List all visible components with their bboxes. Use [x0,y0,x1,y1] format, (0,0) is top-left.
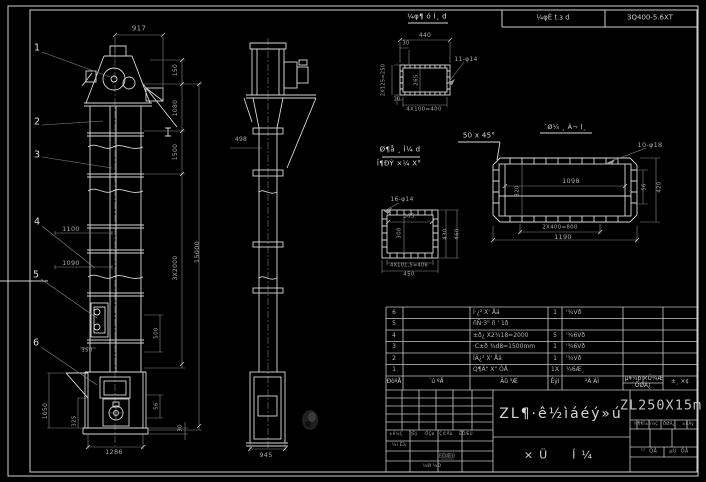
dim-label: 1080 [173,100,179,116]
dim-label: 365 [403,214,414,220]
dim-label: 945 [259,452,272,459]
dim-label: ±ê¼Ç [389,432,403,436]
dim-label: 420 [657,181,663,192]
dim-label: 2X400=800 [542,225,578,231]
bom-cell: 3 [392,344,396,350]
bom-cell: '¾Vð [566,310,581,316]
dim-label: 4X100=400 [406,107,442,113]
dim-label: 500 [154,327,160,338]
sheet-header-code: 3Q400-5.6XT [627,15,673,22]
bom-header-cell: ×Ü¼Æ [643,377,663,383]
dim-label: 11-φ14 [454,57,477,63]
bom-header-cell: µ¥¼þ [625,377,642,383]
dim-label: 440 [419,33,431,39]
text-label: 50 x 45° [463,133,495,140]
bom-cell: 1 [553,310,557,316]
item-balloon: 1 [34,43,40,53]
dim-label: 1286 [105,449,123,456]
bom-cell: ¼6Æ¸ [566,367,584,373]
dim-label: 1190 [554,234,572,241]
dim-label: 3X2000 [173,256,179,281]
dim-label: ÈÕÆÚ [459,432,473,436]
dim-label: 430 [443,228,449,239]
dim-label: ·ÖÇø [424,432,435,436]
dim-label: 56 [154,402,160,410]
dim-label: 4X101.5=406 [390,264,428,269]
bom-cell: 1X [551,367,559,373]
side-view [244,43,316,446]
bom-cell: '¾6Vð [566,344,585,350]
dim-label: 1090 [62,260,80,267]
dim-label: 450 [403,272,414,278]
dim-label: 2X125=250 [382,64,387,97]
front-view [66,46,177,434]
bom-cell: 6 [392,310,396,316]
bom-header-cell: ÐòºÅ [387,380,402,386]
bom-cell: 1 [553,344,557,350]
bom-cell: ·C±ð ¾d8=1500mm [473,344,535,350]
item-balloon: 4 [34,217,40,227]
item-balloon: 2 [34,117,40,127]
dim-label: 16-φ14 [390,197,413,203]
dim-label: 460 [455,228,461,239]
text-label: Î¶ÐÝ ×¼ X° [377,161,421,168]
item-balloon: 3 [34,150,40,160]
centerlines [115,38,268,448]
text-label: ¼φ¶ ó Ì¸ d [407,14,447,21]
item-balloon: 6 [33,338,39,348]
drawing-number: ZL250X15m [620,399,702,413]
bom-cell: 5 [553,333,557,339]
bom-cell: 1 [392,367,396,373]
dim-ticks [86,33,639,451]
dim-label: 300 [397,227,403,238]
drawing-title: ZL¶·ê½ìáéý»ú [499,407,623,421]
dim-label: 1100 [62,226,80,233]
bom-cell: ±ð¿ X2¾18=2000 [473,333,528,339]
bom-cell: '¾6Vð [566,333,585,339]
bom-header-cell: ÖØÁ¿ [635,384,651,390]
dim-label: ¼ì Êä [392,444,406,449]
dim-label: ÖØÁ¿ [663,422,675,426]
detail-flange-c [458,133,637,222]
bom-cell: Q¶Ä" X" ÓÅ [473,367,508,373]
bom-header-cell: ²Ä ÁÏ [585,380,599,386]
dim-label: 10-φ18 [638,142,663,149]
dim-label: ÈÕÆÚ [439,455,456,460]
dim-label: 350 [81,348,92,354]
dim-label: 325 [72,415,78,426]
dim-label: 917 [132,26,146,33]
bom-header-cell: ±¸ ×¢ [671,380,689,386]
dim-label: 56 [642,183,648,191]
bom-header-cell: ´ú ºÅ [428,380,443,386]
bom-cell: 5 [392,321,396,327]
sheet-header-note: ¼φÈ t.з d [536,15,569,22]
dim-label: 1500 [173,144,179,160]
dim-label: 15000 [194,241,201,263]
bom-cell: '¾Vð [566,356,581,362]
dim-label: ¼¶¶Î±ê¼Ç [633,422,658,426]
dim-label: 1098 [562,178,580,185]
dim-label: ±ÈÀý [682,422,694,426]
drawing-subtitle: ×Ü Í¼ [524,450,598,461]
dim-label: µÚ ÕÅ [669,450,688,455]
dim-label: ¼Ø ¼Ð [423,465,442,470]
dim-label: Ç©Ãû [439,432,452,436]
text-label: Ø¶å ¸ Ì¼ d [380,147,421,154]
dim-label: 30 [178,424,184,432]
bom-cell: 1 [553,356,557,362]
dim-label: ´¦Êý [408,432,417,436]
dim-label: 10 [394,98,401,103]
bom-header-cell: Êýl [551,380,560,386]
dim-label: 150 [173,64,179,76]
bom-cell: 2 [392,356,396,362]
dim-label: ¹² ÕÅ [641,450,657,455]
item-balloon: 5 [33,270,39,280]
bom-cell: ñÑ·3" ñ ' 1ð [473,321,508,327]
cad-drawing-sheet: ¼φÈ t.з d 3Q400-5.6XT ZL¶·ê½ìáéý»ú ×Ü Í¼… [0,0,706,482]
dim-label: 30 [403,42,410,47]
dim-label: 1050 [43,403,49,419]
dim-label: 265 [414,74,420,85]
bom-header-cell: Ãû ³Æ [500,380,517,386]
bom-cell: ÏÂ¿² X' Åä [473,356,502,362]
dimension-lines [41,35,660,451]
bom-cell: 4 [392,333,396,339]
dim-label: 320 [515,185,521,196]
dim-label: 498 [235,137,247,143]
bom-cell: Í·¿² X' Åä [473,310,500,316]
titleblock-grid [386,307,697,472]
text-label: ´Ø¼ ¸ Á¬ l¸ [544,124,586,131]
